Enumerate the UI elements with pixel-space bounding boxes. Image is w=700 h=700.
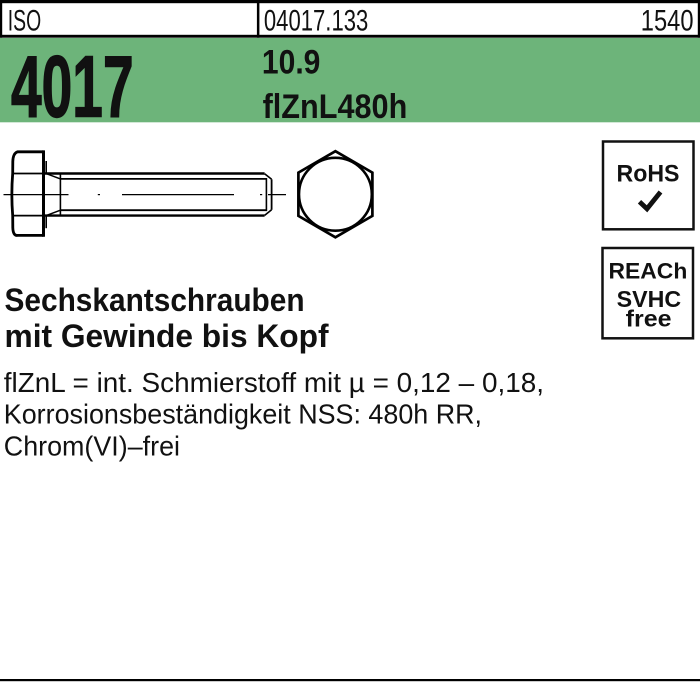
svg-text:ISO: ISO: [8, 4, 41, 37]
svg-text:flZnL480h: flZnL480h: [263, 88, 408, 126]
svg-text:REACh: REACh: [609, 258, 688, 283]
svg-text:Sechskantschrauben: Sechskantschrauben: [5, 282, 305, 318]
svg-text:04017.133: 04017.133: [264, 4, 368, 37]
svg-text:RoHS: RoHS: [617, 161, 680, 188]
svg-text:flZnL = int. Schmierstoff mit: flZnL = int. Schmierstoff mit µ = 0,12 –…: [4, 367, 544, 398]
svg-text:mit Gewinde bis Kopf: mit Gewinde bis Kopf: [5, 318, 329, 354]
svg-text:Chrom(VI)–frei: Chrom(VI)–frei: [4, 431, 180, 462]
svg-text:4017: 4017: [11, 39, 134, 136]
svg-text:1540: 1540: [641, 4, 694, 37]
svg-text:free: free: [626, 305, 672, 331]
svg-text:Korrosionsbeständigkeit NSS: 4: Korrosionsbeständigkeit NSS: 480h RR,: [4, 399, 482, 430]
svg-text:10.9: 10.9: [262, 43, 321, 81]
